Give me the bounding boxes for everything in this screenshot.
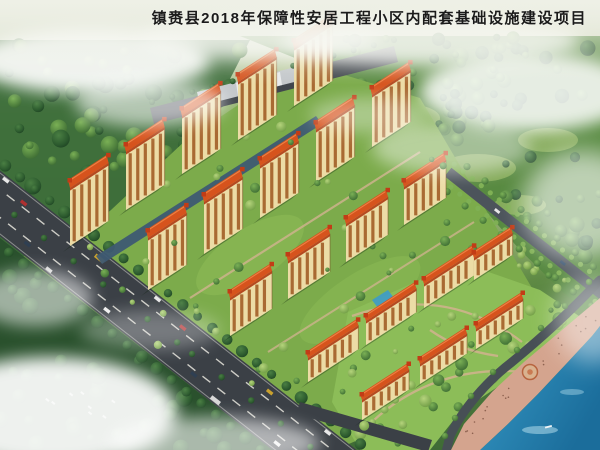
hedge bbox=[457, 192, 462, 197]
roadside-tree bbox=[70, 258, 76, 264]
beach-figure bbox=[485, 410, 487, 412]
roadside-tree bbox=[218, 374, 224, 380]
tree bbox=[279, 342, 289, 352]
beach-figure bbox=[465, 431, 467, 433]
hedge bbox=[578, 262, 583, 267]
screenshot-root: 镇赉县2018年保障性安居工程小区内配套基础设施建设项目 bbox=[0, 0, 600, 450]
roadside-tree bbox=[11, 212, 17, 218]
tree bbox=[288, 139, 294, 145]
tree bbox=[340, 389, 346, 395]
tree bbox=[249, 380, 255, 386]
tree bbox=[52, 130, 70, 148]
roof-parapet bbox=[270, 262, 275, 267]
roadside-tree bbox=[452, 415, 458, 421]
roadside-tree bbox=[177, 299, 188, 310]
roadside-tree bbox=[100, 281, 106, 287]
tree bbox=[553, 284, 562, 293]
roof-parapet bbox=[407, 362, 412, 367]
tree bbox=[325, 268, 329, 272]
roof-parapet bbox=[240, 167, 245, 172]
tree bbox=[26, 141, 34, 149]
beach-figure bbox=[505, 397, 507, 399]
cloud-mist bbox=[310, 97, 430, 133]
roof-parapet bbox=[472, 243, 477, 248]
tree bbox=[517, 263, 522, 268]
tree bbox=[325, 179, 331, 185]
roadside-tree bbox=[468, 393, 474, 399]
beach-figure bbox=[508, 388, 510, 390]
roof-parapet bbox=[465, 326, 470, 331]
roadside-tree bbox=[538, 325, 544, 331]
tree bbox=[314, 180, 320, 186]
roadside-tree bbox=[182, 387, 192, 397]
roadside-tree bbox=[500, 192, 507, 199]
roof-parapet bbox=[418, 356, 423, 361]
tree bbox=[70, 151, 80, 161]
roadside-tree bbox=[480, 217, 487, 224]
roof-parapet bbox=[360, 392, 365, 397]
roadside-tree bbox=[133, 265, 144, 276]
roof-parapet bbox=[414, 280, 419, 285]
hedge bbox=[488, 190, 493, 195]
tree bbox=[408, 326, 414, 332]
top-haze bbox=[0, 0, 600, 85]
hedge bbox=[566, 277, 571, 282]
tree bbox=[95, 126, 104, 135]
tree bbox=[276, 122, 286, 132]
roadside-tree bbox=[167, 375, 177, 385]
tree bbox=[142, 258, 149, 265]
tree bbox=[8, 94, 22, 108]
roof-parapet bbox=[184, 203, 189, 208]
roadside-tree bbox=[355, 438, 366, 449]
roof-parapet bbox=[510, 225, 514, 230]
roadside-tree bbox=[119, 253, 129, 263]
tree bbox=[409, 252, 416, 259]
tree bbox=[546, 272, 553, 279]
roadside-tree bbox=[31, 185, 40, 194]
roof-parapet bbox=[258, 156, 263, 161]
roadside-tree bbox=[151, 362, 164, 375]
beach-figure bbox=[542, 360, 544, 362]
roof-parapet bbox=[328, 225, 333, 230]
tree bbox=[548, 308, 553, 313]
tree bbox=[386, 271, 391, 276]
tree bbox=[398, 420, 407, 429]
roadside-tree bbox=[18, 258, 29, 269]
roadside-tree bbox=[442, 433, 448, 439]
hedge bbox=[529, 249, 534, 254]
tree bbox=[217, 165, 224, 172]
roadside-tree bbox=[490, 369, 496, 375]
tree bbox=[234, 262, 244, 272]
roadside-tree bbox=[590, 263, 597, 270]
roadside-tree bbox=[136, 351, 148, 363]
roof-parapet bbox=[474, 321, 479, 326]
roadside-tree bbox=[58, 206, 71, 219]
roadside-tree bbox=[189, 351, 195, 357]
beach-figure bbox=[482, 418, 484, 420]
beach-figure bbox=[486, 406, 488, 408]
tree bbox=[380, 252, 387, 259]
roadside-tree bbox=[236, 345, 248, 357]
hedge bbox=[493, 220, 498, 225]
tree bbox=[530, 268, 537, 275]
roadside-tree bbox=[534, 260, 541, 267]
tree bbox=[245, 200, 256, 211]
tree bbox=[75, 117, 91, 133]
tree bbox=[48, 156, 57, 165]
roadside-tree bbox=[41, 235, 47, 241]
roof-parapet bbox=[386, 188, 391, 193]
roof-parapet bbox=[68, 178, 73, 183]
beach-figure bbox=[508, 396, 510, 398]
roadside-tree bbox=[481, 177, 488, 184]
beach-figure bbox=[474, 421, 476, 423]
roadside-tree bbox=[295, 391, 308, 404]
tree bbox=[393, 349, 398, 354]
tree bbox=[101, 136, 119, 154]
roadside-tree bbox=[164, 289, 172, 297]
tree bbox=[193, 303, 199, 309]
tree bbox=[339, 304, 349, 314]
roof-parapet bbox=[356, 317, 361, 322]
roadside-tree bbox=[462, 202, 469, 209]
roof-parapet bbox=[202, 192, 207, 197]
tree bbox=[213, 173, 220, 180]
tree bbox=[130, 300, 135, 305]
roof-parapet bbox=[106, 153, 111, 158]
beach-figure bbox=[467, 430, 469, 432]
hedge bbox=[547, 263, 552, 268]
roadside-tree bbox=[196, 398, 206, 408]
roof-parapet bbox=[124, 142, 129, 147]
roof-parapet bbox=[286, 252, 291, 257]
tree bbox=[361, 350, 371, 360]
tree bbox=[32, 100, 44, 112]
roof-parapet bbox=[422, 276, 427, 281]
roadside-tree bbox=[45, 196, 55, 206]
tree bbox=[523, 261, 531, 269]
tree bbox=[468, 341, 475, 348]
cloud-mist bbox=[75, 79, 225, 127]
tree bbox=[250, 183, 260, 193]
roof-parapet bbox=[521, 291, 526, 296]
roadside-tree bbox=[552, 274, 559, 281]
tree bbox=[441, 382, 451, 392]
tree bbox=[419, 395, 432, 408]
water-highlight bbox=[522, 426, 558, 434]
beach-figure bbox=[472, 433, 474, 435]
beach-plaza-center bbox=[527, 369, 533, 375]
tree bbox=[213, 278, 219, 284]
tree bbox=[440, 236, 450, 246]
tree bbox=[349, 191, 358, 200]
roof-parapet bbox=[344, 215, 349, 220]
rendering-canvas bbox=[0, 0, 600, 450]
tree bbox=[87, 244, 93, 250]
roof-parapet bbox=[370, 85, 375, 90]
beach-figure bbox=[543, 364, 545, 366]
roadside-tree bbox=[282, 381, 292, 391]
hedge bbox=[470, 176, 475, 181]
tree bbox=[119, 286, 126, 293]
roof-parapet bbox=[146, 228, 151, 233]
tree bbox=[525, 305, 536, 316]
roadside-tree bbox=[248, 397, 254, 403]
tree bbox=[348, 369, 357, 378]
roof-parapet bbox=[228, 289, 233, 294]
tree bbox=[435, 321, 441, 327]
roadside-tree bbox=[516, 245, 523, 252]
tree bbox=[171, 240, 177, 246]
roof-parapet bbox=[364, 313, 369, 318]
tree bbox=[194, 308, 200, 314]
tree bbox=[15, 124, 25, 134]
tree bbox=[101, 269, 110, 278]
tree bbox=[447, 312, 456, 321]
roadside-tree bbox=[514, 347, 520, 353]
hedge bbox=[506, 205, 511, 210]
tree bbox=[472, 313, 479, 320]
cloud-mist bbox=[80, 310, 220, 350]
roadside-tree bbox=[267, 370, 276, 379]
water-highlight bbox=[560, 389, 584, 395]
tree bbox=[259, 363, 269, 373]
beach-figure bbox=[502, 395, 504, 397]
tree bbox=[293, 378, 299, 384]
roof-parapet bbox=[296, 131, 301, 136]
roof-parapet bbox=[402, 178, 407, 183]
beach-figure bbox=[558, 353, 560, 355]
roof-parapet bbox=[472, 250, 477, 255]
roof-parapet bbox=[306, 350, 311, 355]
tree bbox=[356, 291, 366, 301]
hedge bbox=[475, 206, 480, 211]
roadside-tree bbox=[15, 172, 25, 182]
roadside-tree bbox=[4, 248, 14, 258]
tree bbox=[444, 219, 451, 226]
